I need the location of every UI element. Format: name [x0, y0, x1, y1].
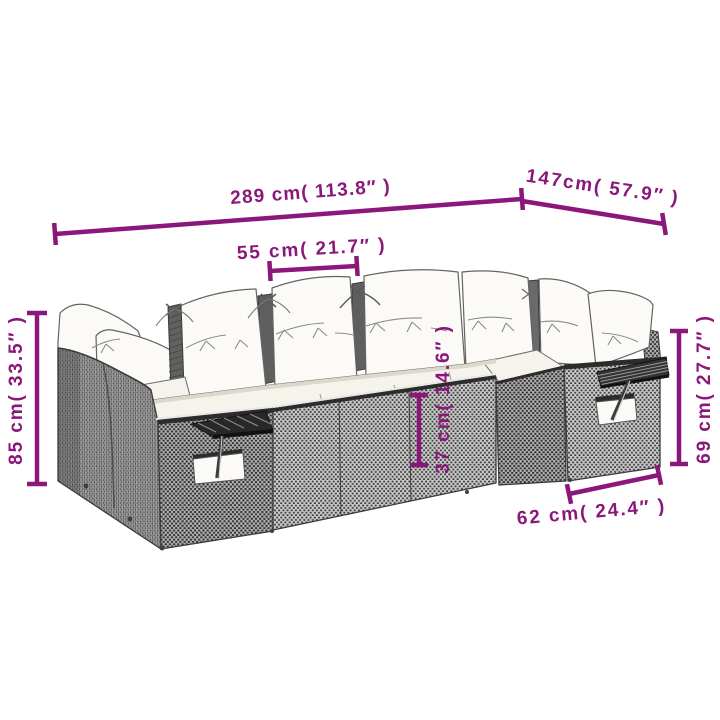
- svg-text:69 cm( 27.7″ ): 69 cm( 27.7″ ): [694, 314, 715, 464]
- svg-text:289 cm( 113.8″ ): 289 cm( 113.8″ ): [230, 176, 392, 209]
- svg-text:37 cm( 14.6″ ): 37 cm( 14.6″ ): [433, 324, 454, 474]
- svg-text:55 cm( 21.7″ ): 55 cm( 21.7″ ): [236, 235, 387, 265]
- svg-text:85 cm( 33.5″ ): 85 cm( 33.5″ ): [6, 315, 27, 465]
- svg-text:147cm( 57.9″ ): 147cm( 57.9″ ): [525, 166, 681, 210]
- svg-text:62 cm( 24.4″ ): 62 cm( 24.4″ ): [516, 496, 667, 530]
